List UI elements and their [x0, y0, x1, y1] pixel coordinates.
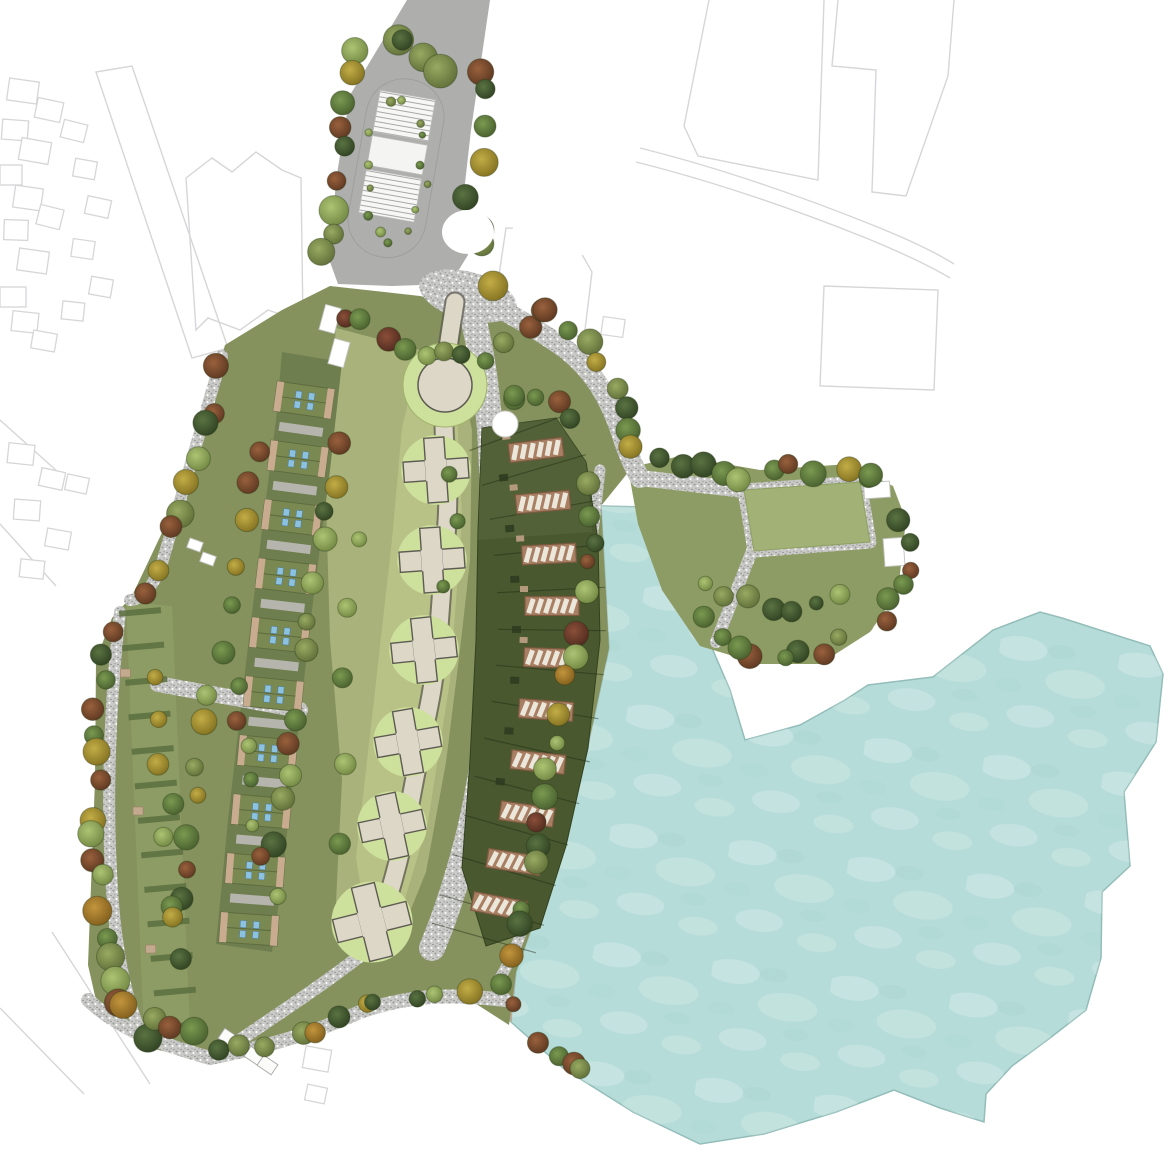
tree	[426, 986, 443, 1003]
rooflight	[510, 576, 519, 583]
tree	[533, 298, 557, 322]
tree	[328, 1006, 350, 1028]
tree	[577, 329, 603, 355]
tree	[170, 948, 191, 969]
skylight	[258, 754, 265, 762]
context-house-outline	[7, 443, 35, 466]
bulb-paving-center	[412, 638, 435, 661]
white-blob	[442, 210, 494, 254]
tree	[470, 148, 498, 176]
tree	[607, 378, 628, 399]
tree	[416, 161, 424, 169]
tree	[506, 997, 521, 1012]
tree	[555, 665, 575, 685]
tree	[78, 821, 104, 847]
skylight	[276, 577, 283, 585]
tree	[364, 161, 372, 169]
tree	[158, 1016, 181, 1039]
tree	[500, 944, 524, 968]
context-house-outline	[601, 317, 625, 338]
tree	[255, 1037, 275, 1057]
bulb-paving-center	[396, 730, 420, 754]
tree	[319, 196, 349, 226]
tree	[227, 558, 244, 575]
tree	[315, 502, 333, 520]
tree	[504, 385, 525, 406]
garden-shed	[133, 807, 143, 815]
context-house-outline	[89, 276, 114, 298]
tree	[301, 572, 323, 594]
skylight	[295, 520, 302, 528]
tree	[227, 711, 246, 730]
tree	[457, 979, 483, 1005]
skylight	[288, 460, 295, 468]
context-outline	[636, 162, 950, 278]
tree	[203, 353, 228, 378]
tree	[527, 389, 544, 406]
skylight	[278, 686, 285, 694]
tree	[527, 813, 547, 833]
tree	[507, 911, 533, 937]
skylight	[245, 872, 252, 879]
skylight	[302, 451, 309, 459]
skylight	[301, 461, 308, 469]
tree	[491, 974, 512, 995]
tree	[284, 709, 306, 731]
tree	[392, 30, 412, 50]
tree	[736, 585, 759, 608]
skylight	[277, 567, 284, 575]
tree	[83, 896, 112, 925]
tree	[781, 601, 802, 622]
tree	[476, 79, 496, 99]
tree	[437, 580, 450, 593]
tree	[367, 185, 374, 192]
context-house-outline	[13, 499, 40, 521]
tree	[224, 597, 241, 614]
context-outline	[186, 152, 303, 330]
tree	[338, 598, 357, 617]
tree	[277, 732, 300, 755]
skylight	[289, 579, 296, 587]
tree	[478, 271, 508, 301]
skylight	[240, 920, 246, 927]
tree	[250, 442, 270, 462]
tree	[342, 38, 368, 64]
tree	[90, 644, 111, 665]
tree	[587, 534, 605, 552]
tree	[331, 91, 355, 115]
tree	[235, 508, 258, 531]
tree	[809, 596, 823, 610]
tree	[305, 1022, 326, 1043]
tree	[424, 181, 431, 188]
tree	[365, 129, 373, 137]
roundabout-paving	[418, 358, 472, 412]
skylight	[239, 930, 245, 937]
tree	[559, 321, 578, 340]
skylight	[307, 403, 314, 411]
tree	[728, 636, 752, 660]
context-house-outline	[60, 119, 88, 142]
skylight	[284, 628, 291, 636]
context-house-outline	[34, 98, 64, 123]
tree	[160, 516, 182, 538]
context-outline	[832, 0, 954, 196]
tree	[174, 825, 199, 850]
tree	[193, 410, 218, 435]
skylight	[264, 814, 271, 821]
tree	[97, 943, 125, 971]
tree	[244, 772, 259, 787]
tree	[394, 339, 416, 361]
tree	[550, 736, 565, 751]
pergola	[525, 597, 579, 616]
tree	[110, 991, 137, 1018]
tree	[279, 764, 301, 786]
tree	[615, 397, 638, 420]
tree	[384, 239, 392, 247]
skylight	[295, 391, 302, 399]
garden-shed	[146, 945, 156, 953]
tree	[332, 668, 352, 688]
tree	[714, 629, 731, 646]
tree	[271, 787, 295, 811]
roof-terrace	[520, 637, 528, 643]
skylight	[283, 509, 290, 517]
tree	[575, 580, 599, 604]
context-house-outline	[45, 528, 72, 550]
tree	[135, 583, 156, 604]
tree	[650, 448, 670, 468]
skylight	[258, 873, 265, 880]
tree	[352, 532, 367, 547]
tree	[190, 787, 206, 803]
white-plaza-disc	[492, 411, 518, 437]
tree	[186, 447, 210, 471]
tree	[196, 685, 216, 705]
context-house-outline	[31, 330, 58, 352]
tree	[91, 770, 111, 790]
tree	[364, 211, 373, 220]
skylight	[253, 921, 259, 928]
skylight	[296, 510, 303, 518]
tree	[83, 738, 110, 765]
context-house-outline	[302, 1046, 331, 1072]
skylight	[264, 695, 271, 703]
tree	[231, 678, 248, 695]
context-house-outline	[13, 185, 44, 211]
tree	[81, 698, 104, 721]
context-house-outline	[84, 196, 111, 219]
bulb-paving-center	[379, 813, 404, 838]
tree	[778, 454, 797, 473]
tree	[209, 1040, 230, 1061]
tree	[97, 671, 116, 690]
tree	[831, 629, 847, 645]
tree	[329, 117, 351, 139]
context-house-outline	[73, 158, 98, 180]
rooflight	[499, 474, 509, 482]
tree	[147, 669, 163, 685]
tree	[901, 533, 919, 551]
context-house-outline	[4, 220, 29, 241]
skylight	[294, 401, 301, 409]
skylight	[270, 636, 277, 644]
pergola	[515, 490, 570, 514]
roof-terrace	[509, 484, 517, 491]
tree	[580, 554, 595, 569]
tree	[180, 1017, 208, 1045]
context-house-outline	[19, 559, 45, 579]
skylight	[252, 931, 258, 938]
tree	[179, 861, 196, 878]
tree	[412, 206, 419, 213]
tree	[340, 60, 365, 85]
rooflight	[505, 525, 515, 533]
tree	[173, 469, 198, 494]
tree	[295, 638, 318, 661]
context-outline	[684, 0, 824, 180]
tree	[325, 476, 348, 499]
tree	[877, 588, 900, 611]
terrace-house	[219, 912, 279, 946]
site-plan-page	[0, 0, 1165, 1165]
tree	[246, 819, 259, 832]
tree	[434, 342, 453, 361]
tree	[386, 97, 396, 107]
tree	[237, 472, 259, 494]
context-house-outline	[18, 138, 51, 165]
context-house-outline	[65, 474, 90, 494]
tree	[726, 468, 750, 492]
rooflight	[512, 626, 521, 633]
tree	[587, 353, 606, 372]
tree	[830, 584, 850, 604]
tree	[887, 508, 910, 531]
context-house-outline	[17, 248, 50, 274]
tree	[560, 409, 580, 429]
tree	[527, 1032, 548, 1053]
tree	[154, 827, 173, 846]
tree	[477, 353, 494, 370]
tree	[493, 332, 513, 352]
rooflight	[504, 727, 513, 735]
context-house-outline	[305, 1084, 328, 1104]
tree	[424, 54, 458, 88]
context-house-outline	[0, 287, 26, 307]
rooflight	[495, 778, 505, 786]
skylight	[258, 744, 265, 752]
tree	[241, 738, 257, 754]
skylight	[282, 518, 289, 526]
skylight	[308, 393, 315, 401]
context-outline	[640, 148, 954, 264]
skylight	[270, 755, 277, 763]
skylight	[246, 862, 253, 869]
tree	[308, 238, 335, 265]
tree	[859, 463, 883, 487]
tree	[547, 703, 570, 726]
tree	[778, 650, 794, 666]
tree	[397, 96, 405, 104]
tree	[698, 576, 712, 590]
tree	[163, 793, 184, 814]
tree	[577, 472, 601, 496]
skylight	[289, 450, 296, 458]
site-plan-map	[0, 0, 1165, 1165]
tree	[335, 753, 357, 775]
tree	[329, 833, 350, 854]
tree	[417, 120, 425, 128]
tree	[418, 347, 436, 365]
tree	[619, 435, 642, 458]
tree	[349, 309, 370, 330]
tree	[103, 622, 123, 642]
tree	[376, 227, 386, 237]
tree	[534, 758, 557, 781]
tree	[148, 560, 169, 581]
tree	[441, 466, 457, 482]
tree	[800, 461, 826, 487]
tree	[365, 994, 381, 1010]
tree	[298, 613, 315, 630]
tree	[270, 888, 286, 904]
tree	[228, 1035, 249, 1056]
skylight	[290, 569, 297, 577]
context-house-outline	[38, 468, 65, 491]
tree	[405, 228, 412, 235]
tree	[191, 709, 217, 735]
tree	[150, 711, 167, 728]
roof-terrace	[520, 586, 528, 592]
tree	[186, 758, 204, 776]
tree	[163, 907, 183, 927]
tree	[327, 172, 346, 191]
skylight	[265, 804, 272, 811]
tree	[452, 346, 470, 364]
tree	[814, 644, 835, 665]
garden-shed	[120, 669, 130, 677]
pergola	[522, 543, 577, 565]
bulb-paving-center	[421, 549, 444, 572]
skylight	[277, 696, 284, 704]
context-house-outline	[36, 204, 64, 229]
tree	[450, 514, 465, 529]
rooflight	[510, 677, 519, 684]
roof-terrace	[516, 535, 524, 541]
tree	[252, 847, 270, 865]
tree	[837, 457, 862, 482]
tree	[93, 864, 114, 885]
sports-pitch	[744, 482, 870, 551]
tree	[212, 641, 235, 664]
skylight	[271, 626, 278, 634]
tree	[532, 784, 558, 810]
terrace-house	[243, 676, 304, 712]
context-house-outline	[71, 239, 95, 260]
tree	[474, 115, 496, 137]
tree	[419, 132, 426, 139]
tree	[714, 587, 734, 607]
tree	[147, 753, 169, 775]
tree	[409, 991, 426, 1008]
tree	[524, 850, 548, 874]
skylight	[283, 638, 290, 646]
skylight	[252, 803, 259, 810]
context-outline	[820, 286, 938, 390]
tree	[453, 184, 479, 210]
tree	[564, 621, 589, 646]
tree	[570, 1059, 590, 1079]
context-house-outline	[7, 78, 40, 104]
tree	[579, 506, 600, 527]
context-outline	[96, 66, 228, 358]
tree	[328, 432, 351, 455]
context-house-outline	[61, 301, 85, 321]
context-house-outline	[0, 165, 22, 185]
tree	[335, 136, 355, 156]
tree	[313, 527, 337, 551]
white-blob	[503, 189, 608, 275]
tree	[877, 611, 897, 631]
skylight	[265, 685, 272, 693]
tree	[693, 606, 714, 627]
